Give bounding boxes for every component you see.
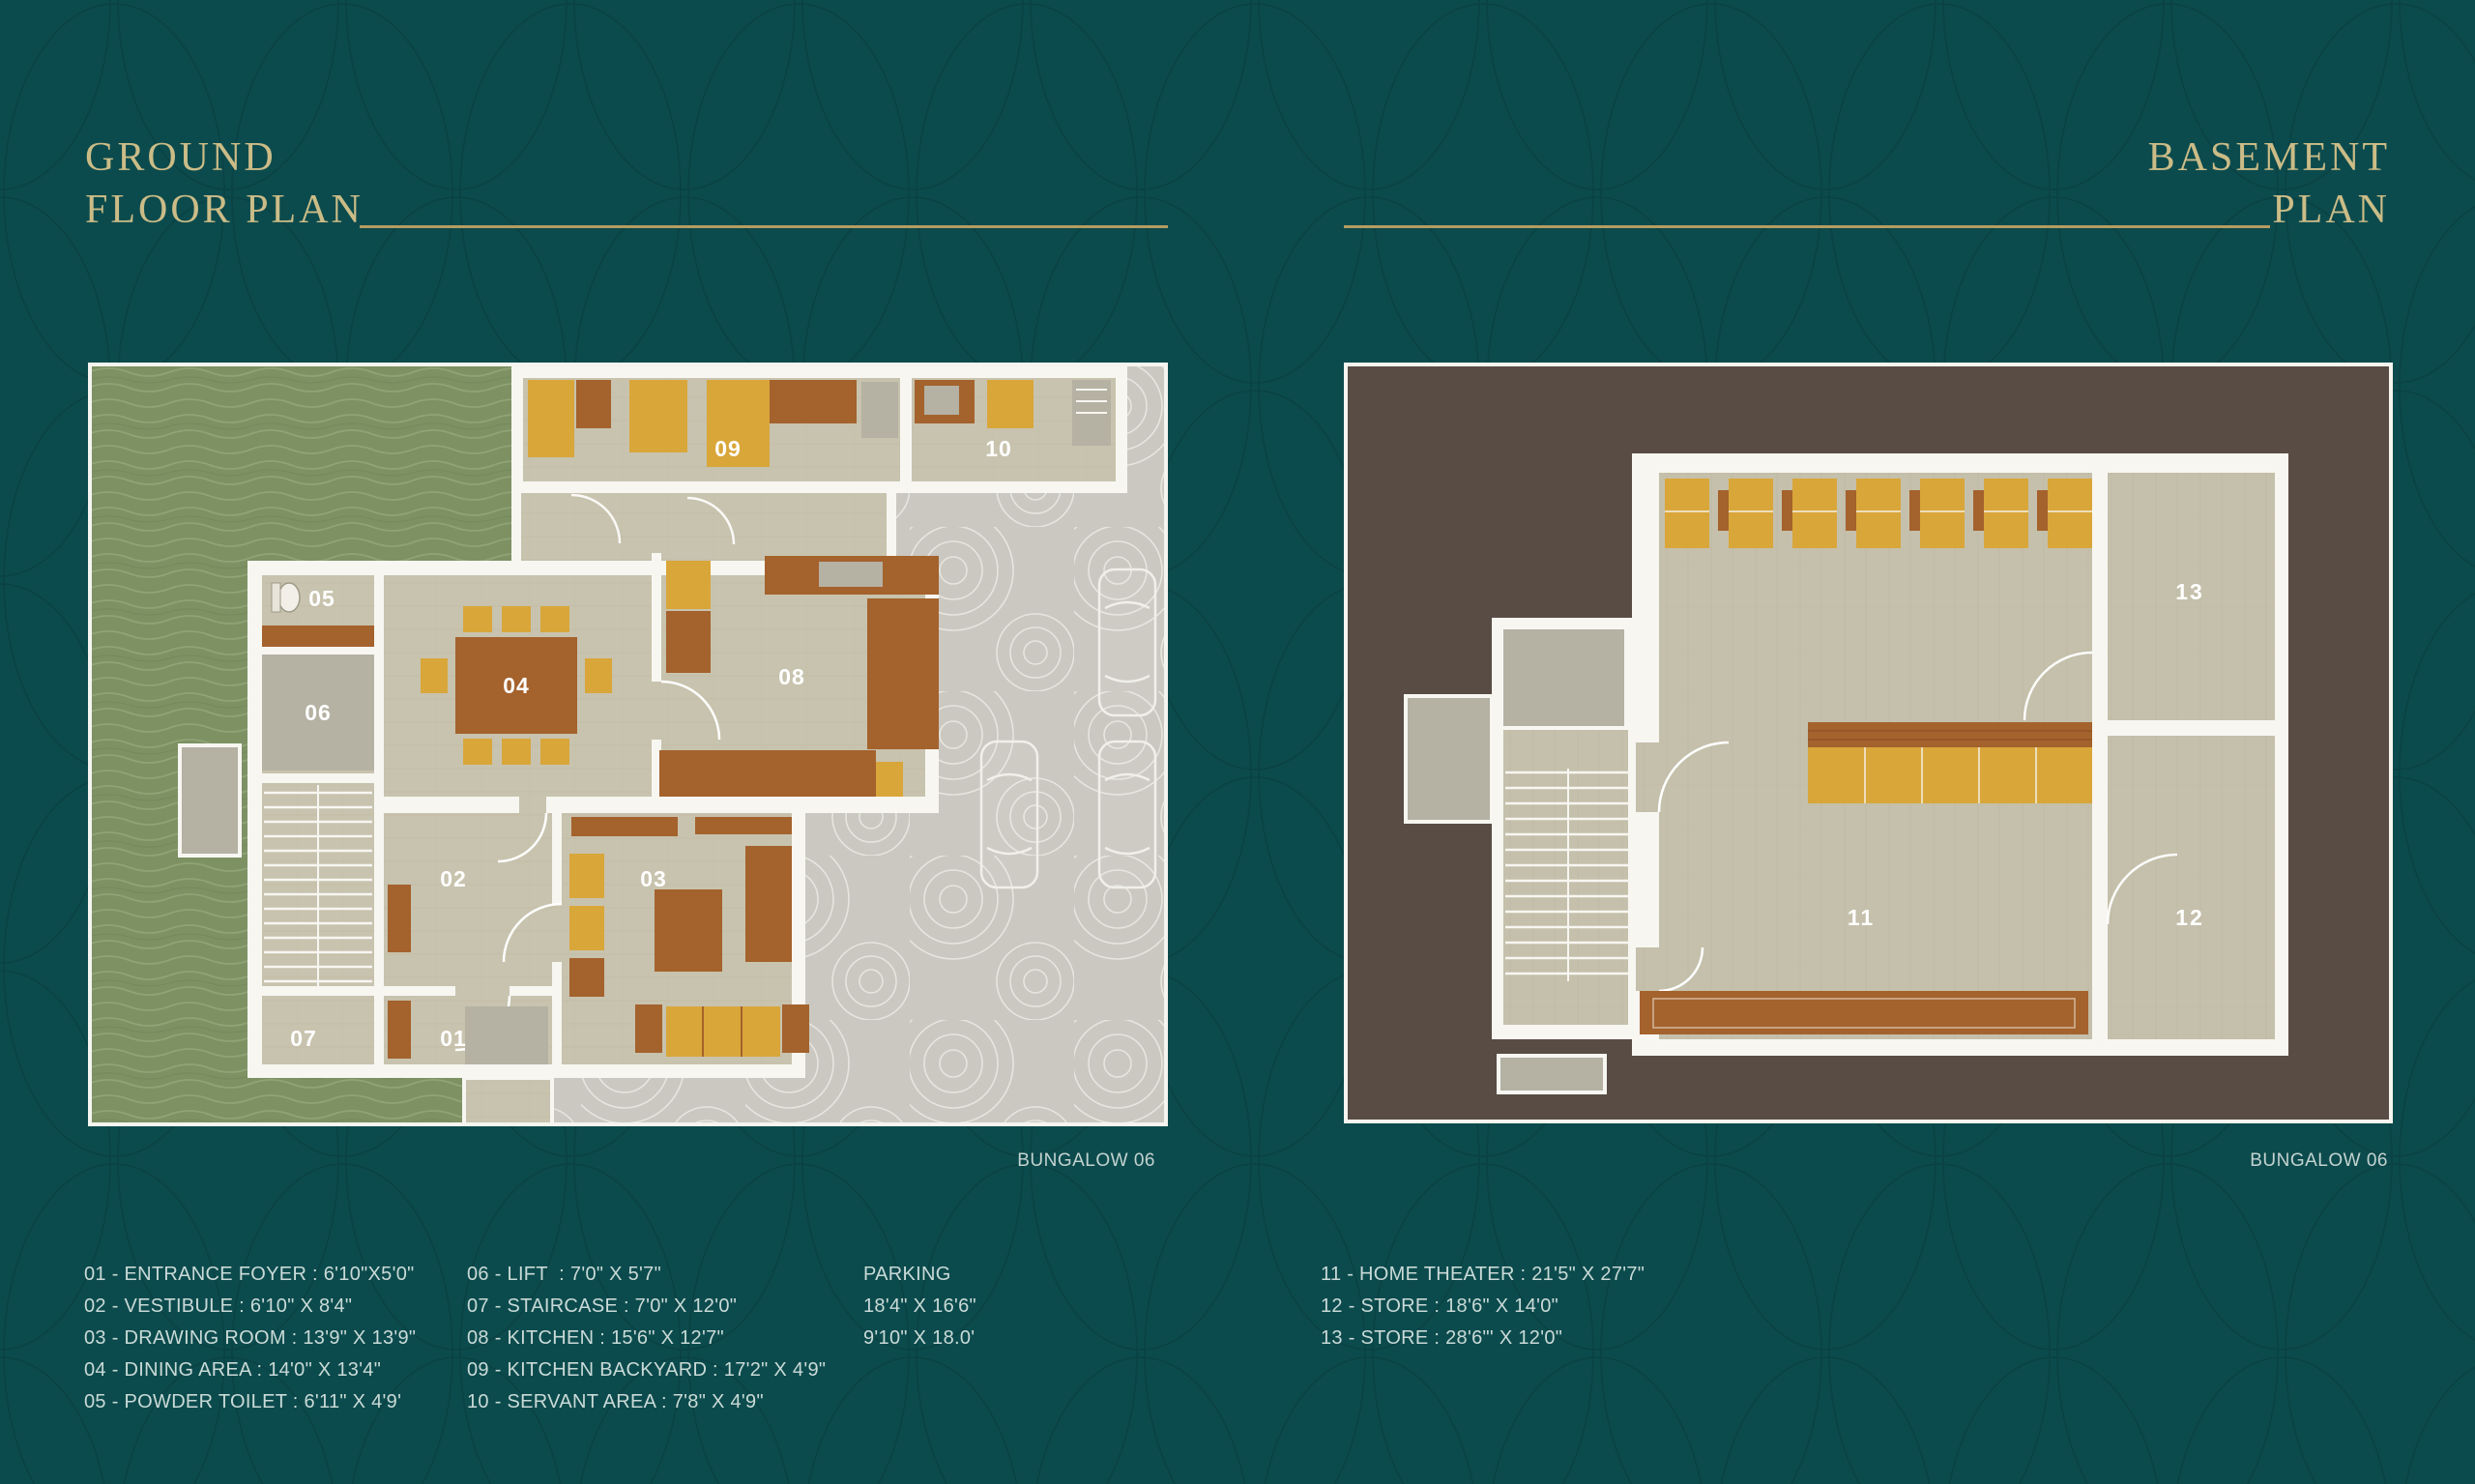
caption-bungalow-right: BUNGALOW 06 xyxy=(1344,1150,2388,1172)
legend-line: 03 - DRAWING ROOM : 13'9" X 13'9" xyxy=(84,1323,416,1354)
car-icon xyxy=(1099,569,1155,715)
legend-line: 06 - LIFT : 7'0" X 5'7" xyxy=(467,1259,826,1291)
car-icon xyxy=(1099,742,1155,887)
caption-bungalow-left: BUNGALOW 06 xyxy=(88,1150,1155,1172)
legend-line: 05 - POWDER TOILET : 6'11" X 4'9' xyxy=(84,1386,416,1418)
room-label-04: 04 xyxy=(503,673,530,698)
page-title-basement: BASEMENT PLAN xyxy=(2148,131,2390,236)
car-icon xyxy=(981,742,1037,887)
cabinet xyxy=(262,626,374,647)
title-line: BASEMENT xyxy=(2148,131,2390,184)
room-label-05: 05 xyxy=(308,586,335,611)
legend-column-rooms-2: 06 - LIFT : 7'0" X 5'7"07 - STAIRCASE : … xyxy=(467,1259,826,1418)
legend-line: 9'10" X 18.0' xyxy=(863,1323,976,1354)
room-label-06: 06 xyxy=(305,700,332,725)
legend-line: 12 - STORE : 18'6" X 14'0" xyxy=(1321,1291,1645,1323)
page-title-ground-floor: GROUND FLOOR PLAN xyxy=(85,131,364,236)
legend-column-rooms-1: 01 - ENTRANCE FOYER : 6'10"X5'0"02 - VES… xyxy=(84,1259,416,1418)
room-label-09: 09 xyxy=(714,436,742,461)
room-label-03: 03 xyxy=(640,866,667,891)
ground-floor-plan-image: 01 02 03 04 05 06 07 08 09 10 xyxy=(88,363,1168,1126)
legend-line: 04 - DINING AREA : 14'0" X 13'4" xyxy=(84,1354,416,1386)
legend-line: PARKING xyxy=(863,1259,976,1291)
legend-line: 02 - VESTIBULE : 6'10" X 8'4" xyxy=(84,1291,416,1323)
legend-line: 07 - STAIRCASE : 7'0" X 12'0" xyxy=(467,1291,826,1323)
side-patio xyxy=(180,745,240,856)
theater-bar xyxy=(1808,722,2092,803)
basement-plan-image: 11 12 13 xyxy=(1344,363,2393,1123)
room-label-02: 02 xyxy=(440,866,467,891)
brochure-page: GROUND FLOOR PLAN BASEMENT PLAN xyxy=(0,0,2475,1484)
room-label-12: 12 xyxy=(2175,905,2204,930)
service-strip xyxy=(511,366,1127,493)
room-label-07: 07 xyxy=(290,1026,317,1051)
legend-line: 08 - KITCHEN : 15'6" X 12'7" xyxy=(467,1323,826,1354)
basement-building xyxy=(1632,453,2288,1056)
legend-line: 18'4" X 16'6" xyxy=(863,1291,976,1323)
title-line: FLOOR PLAN xyxy=(85,184,364,236)
room-label-11: 11 xyxy=(1848,905,1875,930)
legend-column-parking: PARKING18'4" X 16'6"9'10" X 18.0' xyxy=(863,1259,976,1354)
room-label-13: 13 xyxy=(2175,579,2204,604)
legend-line: 10 - SERVANT AREA : 7'8" X 4'9" xyxy=(467,1386,826,1418)
legend-column-basement-rooms: 11 - HOME THEATER : 21'5" X 27'7"12 - ST… xyxy=(1321,1259,1645,1354)
gold-rule-left xyxy=(360,225,1168,228)
legend-line: 13 - STORE : 28'6"' X 12'0" xyxy=(1321,1323,1645,1354)
gold-rule-right xyxy=(1344,225,2270,228)
room-label-08: 08 xyxy=(778,664,805,689)
legend-line: 01 - ENTRANCE FOYER : 6'10"X5'0" xyxy=(84,1259,416,1291)
theater-recliners xyxy=(1665,479,2092,548)
powder-toilet xyxy=(272,583,300,612)
entrance-porch xyxy=(464,1078,552,1124)
theater-sofa xyxy=(1640,991,2088,1034)
legend-line: 11 - HOME THEATER : 21'5" X 27'7" xyxy=(1321,1259,1645,1291)
legend-line: 09 - KITCHEN BACKYARD : 17'2" X 4'9" xyxy=(467,1354,826,1386)
title-line: GROUND xyxy=(85,131,364,184)
room-label-10: 10 xyxy=(985,436,1012,461)
backyard-corridor xyxy=(511,493,896,561)
room-label-01: 01 xyxy=(440,1026,467,1051)
